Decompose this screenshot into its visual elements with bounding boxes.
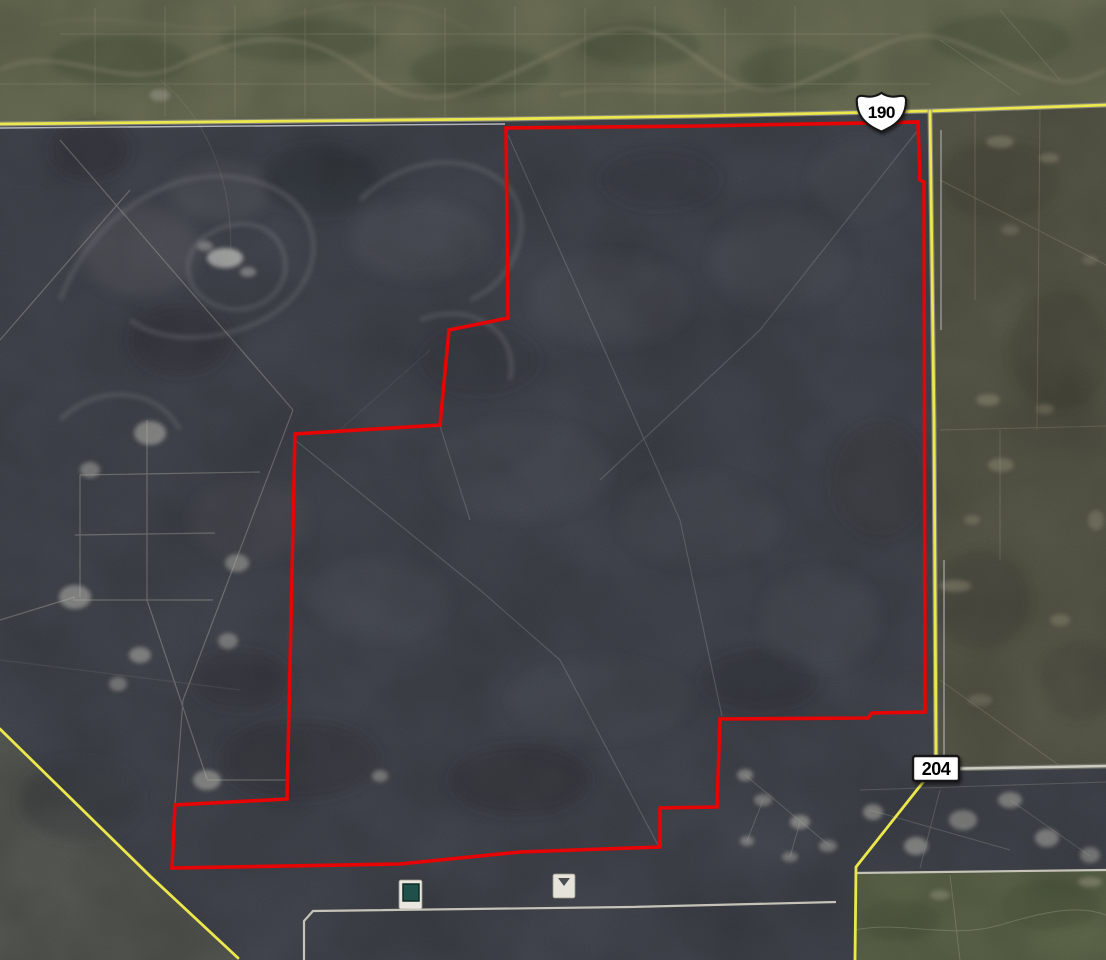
route-shield-label: 190: [868, 103, 895, 122]
well-pad: [553, 874, 575, 898]
road-sign-label: 204: [922, 759, 951, 779]
frac-pond-pad: [399, 880, 422, 909]
terrain-satellite-imagery: [0, 0, 1106, 960]
map-viewport[interactable]: 190 204: [0, 0, 1106, 960]
road-sign-204: 204: [913, 756, 959, 781]
